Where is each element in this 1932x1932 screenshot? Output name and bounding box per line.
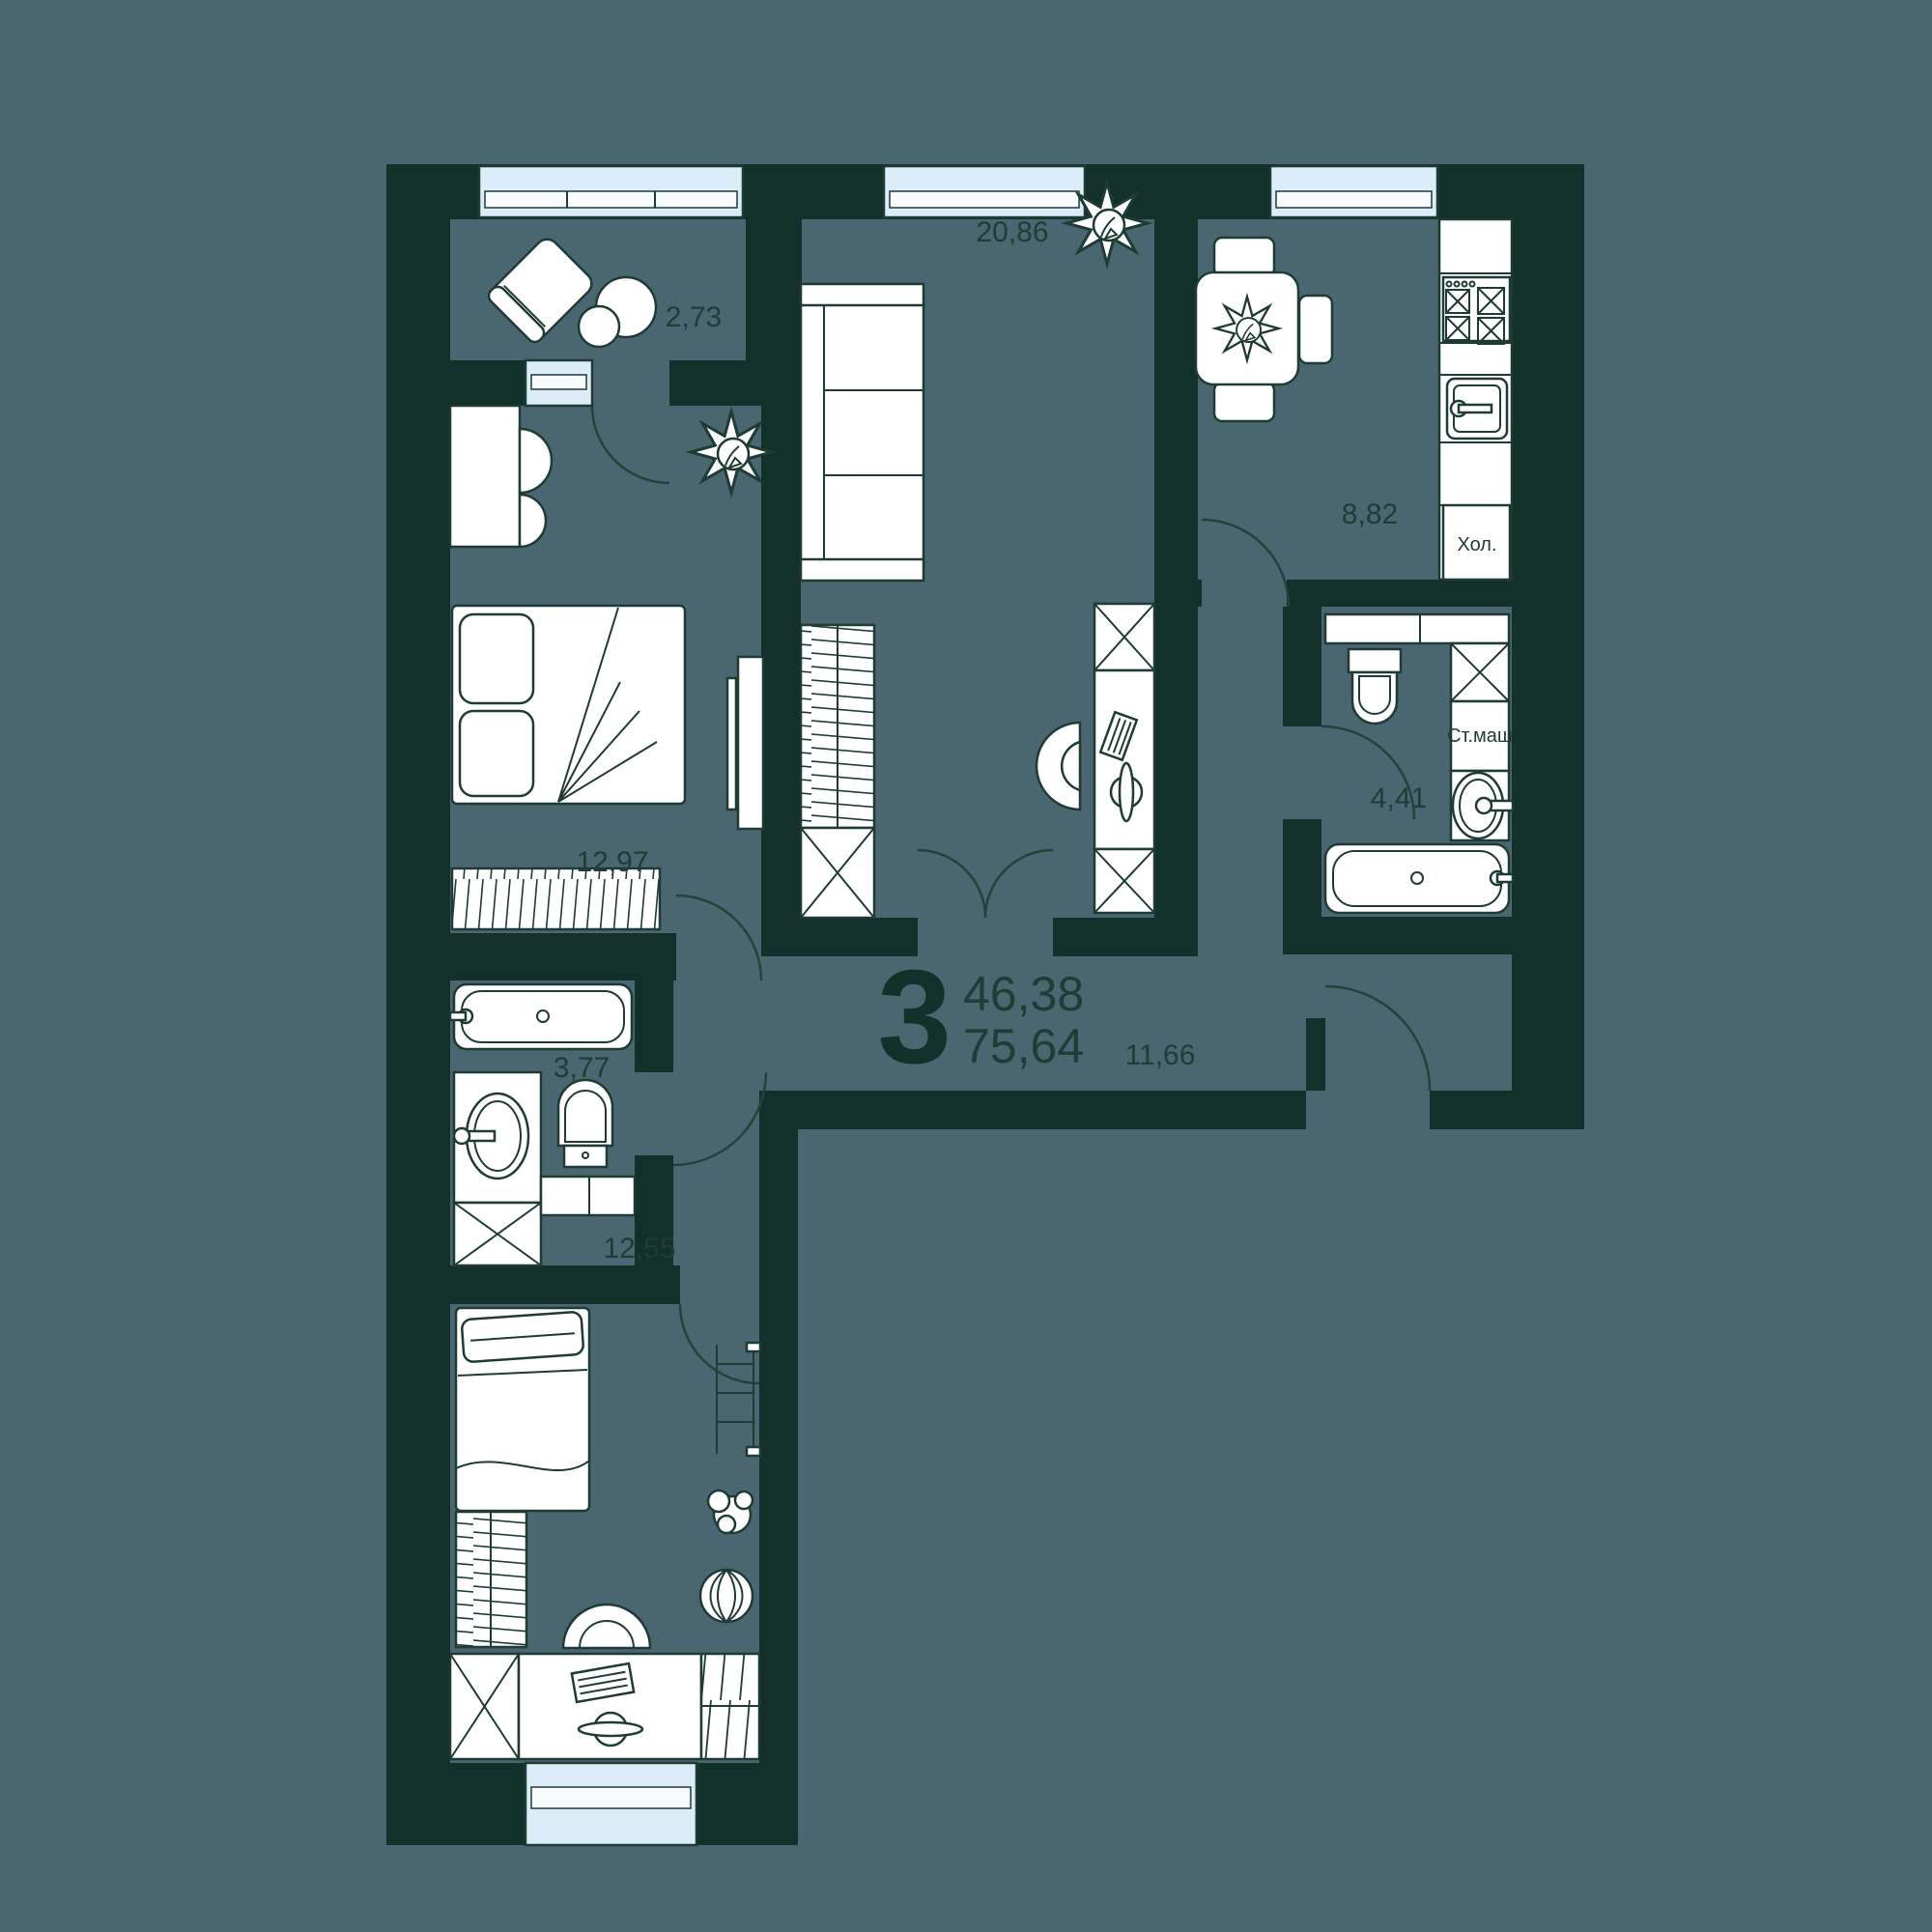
- hallway-area-label: 11,66: [1125, 1039, 1196, 1071]
- cabinet-icon: [450, 1654, 519, 1759]
- desk-computer-icon: [519, 1654, 701, 1759]
- plant-icon: [1215, 297, 1279, 360]
- teddy-bear-icon: [708, 1491, 753, 1533]
- shelf-icon: [1325, 614, 1509, 643]
- stool-icon: [579, 306, 619, 347]
- room-balcony: [486, 235, 656, 347]
- bathtub-icon: [450, 984, 632, 1049]
- washing-machine-icon: Ст.маш: [1447, 701, 1513, 771]
- fridge-label: Хол.: [1457, 534, 1496, 555]
- kitchen-area-label: 8,82: [1342, 498, 1398, 530]
- desk-computer-icon: [1094, 670, 1154, 849]
- single-bed-icon: [456, 1308, 589, 1511]
- cabinet-icon: [1094, 604, 1154, 670]
- toilet-icon: [558, 1080, 612, 1167]
- desk-chair-icon: [563, 1605, 650, 1648]
- fridge-icon: Хол.: [1443, 505, 1510, 580]
- living-window: [884, 166, 1085, 217]
- stove-icon: [1443, 277, 1510, 344]
- balcony-area-label: 2,73: [666, 301, 722, 333]
- wall-bars-icon: [717, 1343, 760, 1456]
- balcony-door-console: [526, 360, 592, 406]
- bathtub-icon: [1325, 844, 1513, 913]
- room-bathroom-small: [450, 984, 635, 1265]
- living-double-door-left-arc: [918, 850, 985, 918]
- bathroom-area-label: 4,41: [1371, 782, 1427, 814]
- cabinet-icon: [454, 1203, 541, 1265]
- cabinet-icon: [1094, 849, 1154, 913]
- chair-icon: [1214, 383, 1274, 421]
- wardrobe-icon: [801, 625, 874, 828]
- bathroom-sink-icon: [1451, 771, 1513, 840]
- kitchen-window: [1270, 166, 1437, 217]
- chair-icon: [1214, 238, 1274, 276]
- tv-panel-icon: [727, 657, 763, 829]
- double-bed-icon: [452, 606, 685, 804]
- desk-chair-icon: [1037, 723, 1080, 810]
- room-living: [801, 183, 1154, 918]
- balcony-window: [479, 166, 743, 217]
- room-bathroom: Ст.маш: [1325, 614, 1513, 913]
- wardrobe-icon: [456, 1512, 526, 1647]
- floor-plan-page: { "plan": { "type": "apartment-floor-pla…: [0, 0, 1932, 1932]
- rooms-count-label: 3: [877, 943, 952, 1092]
- toilet-icon: [1349, 649, 1401, 724]
- cabinet-icon: [801, 828, 874, 918]
- living-double-door-right-arc: [985, 850, 1053, 918]
- bathroom-small-area-label: 3,77: [554, 1052, 610, 1084]
- total-area-label: 75,64: [963, 1019, 1084, 1073]
- living-area-label: 20,86: [976, 216, 1048, 248]
- bedroom2-window: [526, 1763, 696, 1845]
- ball-icon: [700, 1570, 753, 1622]
- living-area-total-label: 46,38: [963, 967, 1084, 1021]
- kitchen-door-arc: [1202, 520, 1289, 607]
- bedroom-area-label: 12,97: [576, 846, 648, 878]
- plant-icon: [691, 412, 772, 493]
- floor-plan-svg: Хол. Ст.маш: [0, 0, 1932, 1932]
- bedroom-door-arc: [676, 895, 761, 980]
- room-bedroom-2: [450, 1308, 760, 1759]
- vanity-sink-icon: [454, 1072, 541, 1203]
- sofa-icon: [801, 284, 923, 581]
- kitchen-sink-icon: [1447, 379, 1507, 439]
- dresser-tv-icon: [450, 406, 552, 547]
- chair-icon: [1299, 296, 1332, 363]
- shelf-icon: [541, 1177, 635, 1215]
- bedroom2-area-label: 12,55: [603, 1233, 675, 1264]
- washer-label: Ст.маш: [1447, 725, 1513, 747]
- bathroom2-door-arc: [673, 1072, 766, 1165]
- shelf-unit-icon: [701, 1654, 759, 1759]
- apartment-summary: 3 46,38 75,64: [877, 943, 1084, 1092]
- plant-icon: [1066, 183, 1148, 264]
- cabinet-icon: [1451, 643, 1509, 701]
- balcony-door-arc: [592, 406, 669, 483]
- entry-door-arc: [1325, 986, 1430, 1091]
